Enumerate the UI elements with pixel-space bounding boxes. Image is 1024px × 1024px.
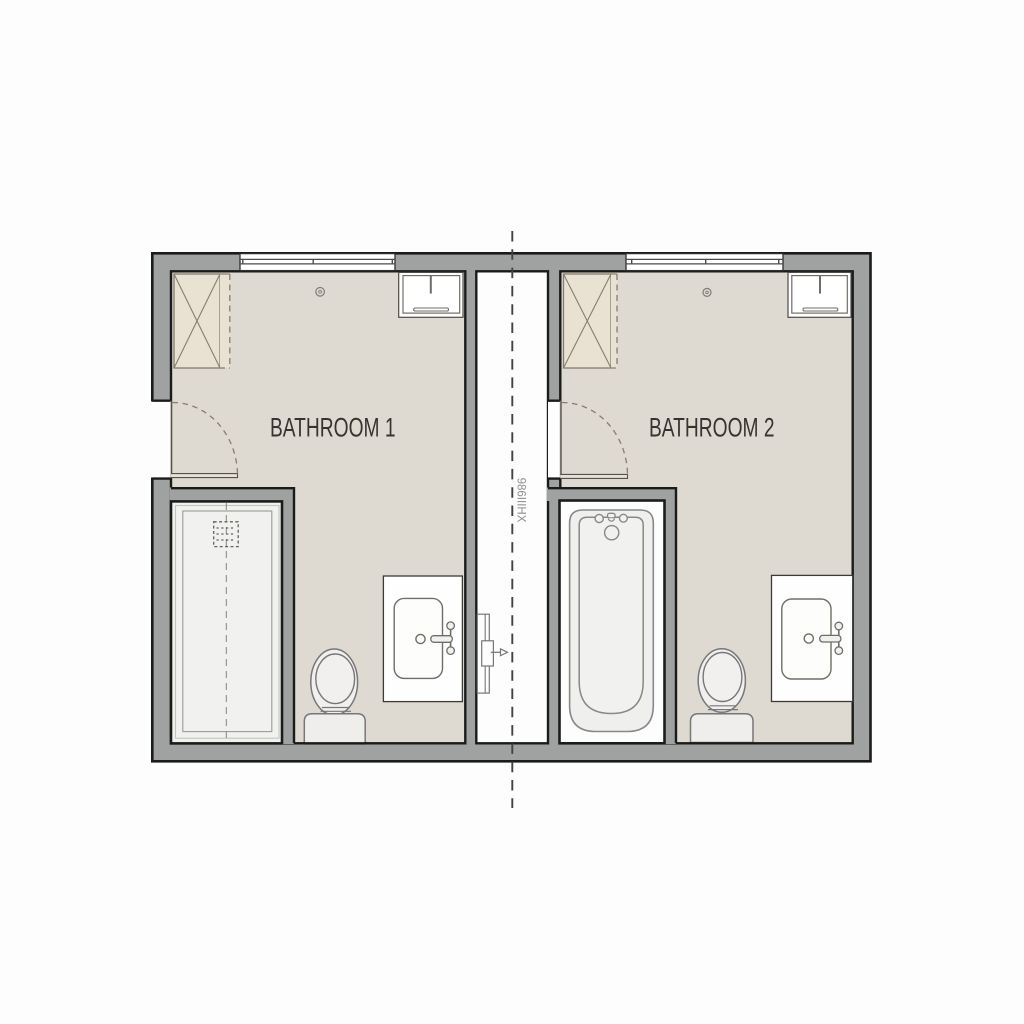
svg-text:BATHROOM 2: BATHROOM 2: [649, 412, 775, 442]
svg-text:BATHROOM 1: BATHROOM 1: [270, 412, 396, 442]
svg-text:986IIIHX: 986IIIHX: [514, 478, 526, 523]
